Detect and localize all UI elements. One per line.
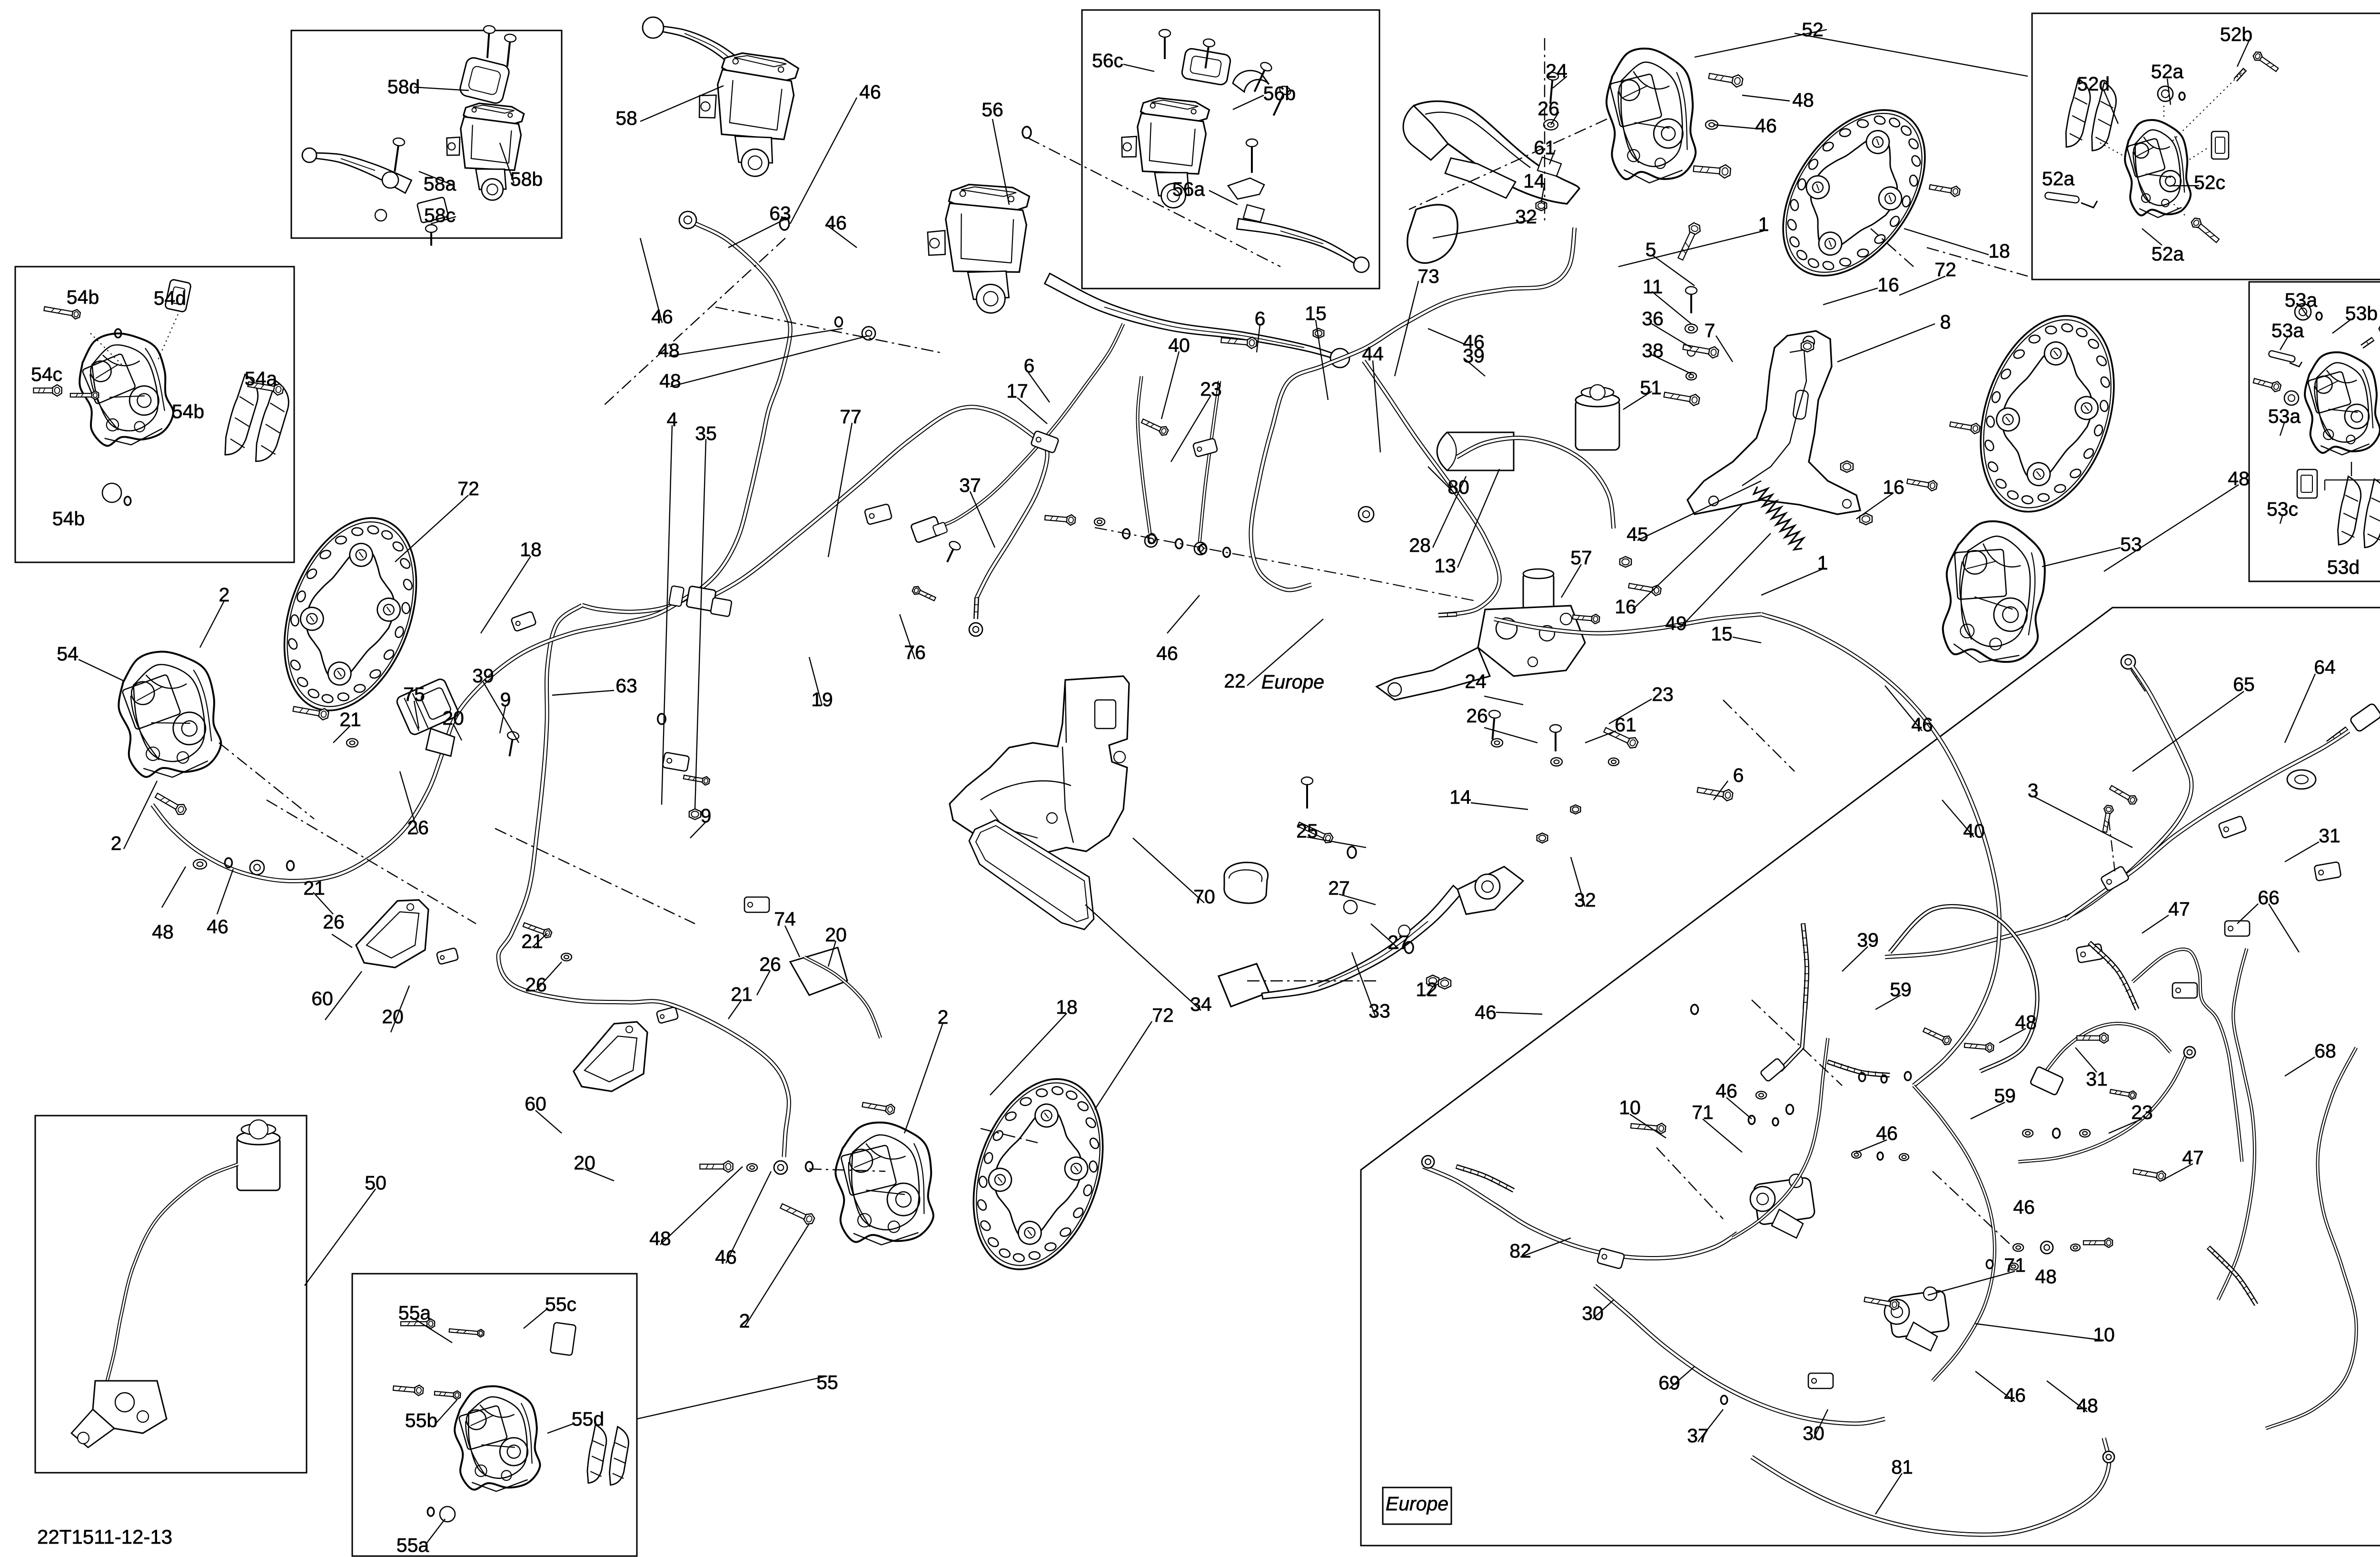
svg-text:46: 46 bbox=[207, 916, 228, 938]
svg-text:3: 3 bbox=[2028, 779, 2039, 801]
svg-text:37: 37 bbox=[959, 474, 981, 496]
svg-text:59: 59 bbox=[1890, 978, 1912, 1000]
svg-text:25: 25 bbox=[1296, 820, 1318, 842]
svg-text:17: 17 bbox=[1006, 380, 1028, 402]
svg-text:1: 1 bbox=[1758, 213, 1769, 235]
svg-text:52a: 52a bbox=[2151, 60, 2184, 82]
svg-text:37: 37 bbox=[1687, 1425, 1709, 1447]
svg-text:15: 15 bbox=[1305, 302, 1327, 324]
svg-text:46: 46 bbox=[825, 212, 847, 234]
svg-text:18: 18 bbox=[1988, 240, 2010, 262]
svg-text:46: 46 bbox=[859, 81, 881, 103]
svg-text:48: 48 bbox=[152, 921, 174, 943]
svg-text:47: 47 bbox=[2182, 1147, 2204, 1168]
svg-text:26: 26 bbox=[525, 974, 547, 996]
svg-text:46: 46 bbox=[1755, 115, 1777, 137]
svg-text:48: 48 bbox=[649, 1228, 671, 1249]
svg-text:27: 27 bbox=[1388, 931, 1409, 953]
svg-text:23: 23 bbox=[2131, 1101, 2153, 1123]
svg-text:54a: 54a bbox=[245, 368, 278, 389]
svg-text:33: 33 bbox=[1368, 1000, 1390, 1022]
svg-text:10: 10 bbox=[2093, 1324, 2115, 1346]
svg-text:6: 6 bbox=[1024, 355, 1035, 377]
svg-text:55a: 55a bbox=[397, 1534, 429, 1556]
svg-text:61: 61 bbox=[1615, 714, 1636, 736]
svg-text:12: 12 bbox=[1416, 978, 1438, 1000]
svg-text:16: 16 bbox=[1877, 274, 1899, 296]
svg-text:56b: 56b bbox=[1263, 82, 1296, 104]
svg-text:26: 26 bbox=[1537, 98, 1559, 120]
svg-text:56a: 56a bbox=[1172, 178, 1205, 200]
svg-text:19: 19 bbox=[811, 689, 833, 710]
svg-text:53a: 53a bbox=[2271, 319, 2304, 341]
svg-text:34: 34 bbox=[1190, 993, 1212, 1015]
svg-text:55b: 55b bbox=[405, 1409, 437, 1431]
svg-text:72: 72 bbox=[1152, 1004, 1174, 1026]
svg-text:48: 48 bbox=[2015, 1011, 2037, 1033]
svg-text:44: 44 bbox=[1362, 343, 1384, 365]
svg-text:80: 80 bbox=[1448, 476, 1469, 498]
svg-text:9: 9 bbox=[500, 689, 511, 710]
svg-text:32: 32 bbox=[1574, 889, 1596, 911]
svg-text:31: 31 bbox=[2086, 1068, 2108, 1090]
svg-text:Europe: Europe bbox=[1261, 671, 1324, 693]
svg-text:64: 64 bbox=[2314, 656, 2336, 678]
svg-text:20: 20 bbox=[442, 707, 464, 729]
svg-text:23: 23 bbox=[1652, 683, 1674, 705]
svg-text:26: 26 bbox=[1466, 705, 1488, 727]
svg-text:52d: 52d bbox=[2077, 73, 2110, 95]
svg-text:40: 40 bbox=[1963, 820, 1985, 842]
svg-text:63: 63 bbox=[615, 675, 637, 697]
svg-text:54b: 54b bbox=[67, 286, 99, 308]
svg-text:68: 68 bbox=[2314, 1040, 2336, 1062]
svg-text:71: 71 bbox=[2004, 1254, 2026, 1276]
svg-text:32: 32 bbox=[1515, 206, 1537, 228]
svg-text:48: 48 bbox=[2035, 1266, 2057, 1288]
svg-text:54b: 54b bbox=[52, 508, 85, 529]
svg-text:26: 26 bbox=[759, 953, 781, 975]
svg-text:56: 56 bbox=[982, 99, 1003, 120]
svg-text:39: 39 bbox=[1857, 929, 1879, 951]
svg-text:46: 46 bbox=[1911, 714, 1933, 736]
svg-text:55d: 55d bbox=[572, 1408, 604, 1430]
svg-text:52a: 52a bbox=[2152, 243, 2184, 265]
svg-text:36: 36 bbox=[1642, 308, 1664, 329]
svg-text:46: 46 bbox=[1716, 1080, 1737, 1102]
svg-text:82: 82 bbox=[1509, 1240, 1531, 1262]
svg-text:45: 45 bbox=[1626, 523, 1648, 545]
svg-text:48: 48 bbox=[2228, 468, 2250, 489]
svg-text:2: 2 bbox=[739, 1310, 750, 1332]
svg-text:69: 69 bbox=[1658, 1372, 1680, 1394]
svg-text:35: 35 bbox=[695, 422, 717, 444]
svg-text:4: 4 bbox=[667, 409, 678, 430]
svg-text:75: 75 bbox=[403, 683, 425, 705]
svg-text:13: 13 bbox=[1434, 555, 1456, 577]
svg-text:40: 40 bbox=[1168, 334, 1190, 356]
svg-text:46: 46 bbox=[2013, 1196, 2035, 1218]
svg-text:53a: 53a bbox=[2285, 289, 2318, 311]
svg-text:54d: 54d bbox=[154, 287, 186, 309]
svg-text:76: 76 bbox=[904, 641, 926, 663]
svg-text:46: 46 bbox=[651, 306, 673, 328]
svg-text:66: 66 bbox=[2258, 887, 2280, 908]
svg-text:56c: 56c bbox=[1092, 50, 1123, 71]
svg-text:74: 74 bbox=[774, 908, 796, 930]
svg-text:26: 26 bbox=[323, 911, 345, 933]
svg-text:58d: 58d bbox=[387, 76, 420, 98]
svg-text:20: 20 bbox=[825, 924, 847, 946]
svg-text:52a: 52a bbox=[2042, 168, 2075, 190]
svg-text:23: 23 bbox=[1200, 378, 1222, 400]
svg-text:8: 8 bbox=[1940, 311, 1951, 333]
svg-text:1: 1 bbox=[1817, 552, 1828, 574]
svg-text:18: 18 bbox=[1056, 996, 1078, 1018]
svg-text:2: 2 bbox=[938, 1006, 949, 1028]
svg-text:24: 24 bbox=[1546, 60, 1567, 82]
svg-text:58c: 58c bbox=[424, 204, 456, 226]
svg-text:54: 54 bbox=[57, 643, 79, 665]
svg-text:73: 73 bbox=[1418, 265, 1439, 287]
svg-text:57: 57 bbox=[1570, 547, 1592, 569]
svg-text:81: 81 bbox=[1891, 1456, 1913, 1478]
svg-text:70: 70 bbox=[1193, 886, 1215, 908]
svg-text:28: 28 bbox=[1409, 534, 1431, 556]
svg-text:15: 15 bbox=[1711, 623, 1733, 645]
svg-text:21: 21 bbox=[303, 877, 325, 899]
svg-text:48: 48 bbox=[1792, 89, 1814, 111]
svg-text:11: 11 bbox=[1643, 276, 1663, 298]
svg-text:46: 46 bbox=[1463, 331, 1485, 353]
svg-text:21: 21 bbox=[521, 930, 543, 952]
svg-text:39: 39 bbox=[472, 665, 494, 687]
svg-text:30: 30 bbox=[1582, 1302, 1604, 1324]
svg-text:18: 18 bbox=[520, 539, 542, 560]
svg-text:20: 20 bbox=[382, 1006, 404, 1028]
svg-text:46: 46 bbox=[1475, 1001, 1497, 1023]
svg-text:55c: 55c bbox=[545, 1293, 576, 1315]
svg-text:53d: 53d bbox=[2327, 556, 2360, 578]
svg-text:Europe: Europe bbox=[1386, 1493, 1448, 1515]
svg-text:72: 72 bbox=[1934, 259, 1956, 280]
svg-text:48: 48 bbox=[2076, 1395, 2098, 1417]
svg-text:6: 6 bbox=[1255, 308, 1266, 329]
svg-text:31: 31 bbox=[2319, 825, 2340, 847]
svg-text:48: 48 bbox=[659, 370, 681, 392]
svg-text:53a: 53a bbox=[2268, 405, 2301, 427]
svg-text:14: 14 bbox=[1449, 786, 1471, 808]
svg-text:38: 38 bbox=[1642, 339, 1664, 361]
svg-text:21: 21 bbox=[731, 983, 753, 1005]
svg-text:47: 47 bbox=[2168, 898, 2190, 920]
svg-text:10: 10 bbox=[1619, 1097, 1641, 1118]
svg-text:59: 59 bbox=[1994, 1085, 2016, 1107]
svg-text:50: 50 bbox=[365, 1172, 387, 1194]
svg-text:14: 14 bbox=[1523, 170, 1545, 192]
svg-text:53b: 53b bbox=[2345, 302, 2378, 324]
svg-text:63: 63 bbox=[769, 202, 791, 224]
svg-text:46: 46 bbox=[2004, 1384, 2026, 1406]
svg-text:55a: 55a bbox=[398, 1302, 431, 1324]
svg-text:2: 2 bbox=[111, 832, 122, 854]
svg-text:24: 24 bbox=[1465, 670, 1487, 692]
svg-text:26: 26 bbox=[407, 817, 429, 838]
svg-text:9: 9 bbox=[701, 805, 712, 827]
svg-text:77: 77 bbox=[840, 406, 862, 428]
svg-text:22T1511-12-13: 22T1511-12-13 bbox=[37, 1526, 172, 1548]
svg-text:54c: 54c bbox=[31, 363, 62, 385]
svg-text:55: 55 bbox=[816, 1371, 838, 1393]
svg-text:60: 60 bbox=[311, 988, 333, 1009]
svg-text:30: 30 bbox=[1803, 1422, 1825, 1444]
svg-text:51: 51 bbox=[1640, 377, 1662, 399]
svg-text:7: 7 bbox=[1705, 319, 1716, 341]
svg-text:46: 46 bbox=[1876, 1122, 1898, 1144]
svg-text:58: 58 bbox=[615, 107, 637, 129]
svg-text:61: 61 bbox=[1534, 137, 1556, 159]
svg-text:48: 48 bbox=[658, 339, 680, 361]
svg-text:46: 46 bbox=[715, 1246, 737, 1268]
svg-text:60: 60 bbox=[525, 1093, 546, 1115]
svg-text:22: 22 bbox=[1224, 670, 1246, 692]
svg-text:5: 5 bbox=[1646, 239, 1656, 260]
svg-text:53: 53 bbox=[2120, 533, 2142, 555]
svg-text:65: 65 bbox=[2233, 673, 2255, 695]
svg-text:52b: 52b bbox=[2220, 23, 2252, 45]
svg-text:53c: 53c bbox=[2267, 498, 2298, 520]
svg-text:2: 2 bbox=[219, 584, 230, 606]
svg-text:6: 6 bbox=[1733, 764, 1744, 786]
svg-text:52c: 52c bbox=[2194, 171, 2225, 193]
svg-text:52: 52 bbox=[1802, 19, 1824, 40]
svg-text:72: 72 bbox=[457, 478, 479, 499]
svg-text:16: 16 bbox=[1615, 596, 1636, 618]
svg-text:58b: 58b bbox=[510, 168, 543, 190]
svg-text:21: 21 bbox=[339, 709, 361, 730]
svg-text:27: 27 bbox=[1328, 877, 1350, 899]
svg-text:54b: 54b bbox=[172, 400, 204, 422]
svg-text:49: 49 bbox=[1665, 612, 1687, 634]
svg-text:58a: 58a bbox=[424, 173, 456, 195]
svg-text:20: 20 bbox=[574, 1152, 595, 1174]
svg-text:46: 46 bbox=[1156, 642, 1178, 664]
svg-text:16: 16 bbox=[1883, 476, 1904, 498]
svg-text:71: 71 bbox=[1692, 1101, 1714, 1123]
